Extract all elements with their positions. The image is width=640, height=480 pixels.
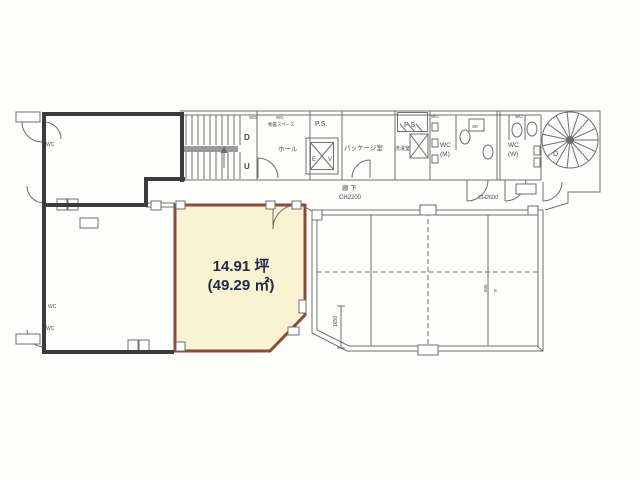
- room-label-wc-upper-left: WC: [46, 142, 55, 148]
- wc-w-label-1: WC: [508, 142, 519, 149]
- spiral-down-label: D: [553, 151, 558, 158]
- paper-background: [0, 0, 640, 480]
- wc-m-label-1: WC: [440, 142, 451, 149]
- package-room-label: パッケージ室: [344, 143, 383, 152]
- ps-label: P.S.: [315, 121, 327, 128]
- elevator-v-label: V: [328, 157, 332, 163]
- wc-m-label-2: (M): [440, 151, 450, 158]
- stairs-down-label: D: [244, 133, 250, 142]
- corridor-label: 廊 下: [342, 183, 357, 192]
- wg-label-1: WG: [249, 115, 257, 120]
- storage-label: 物置スペース: [268, 121, 295, 128]
- ps-small-label: P S: [404, 122, 415, 129]
- dimension-500-label: 500: [483, 284, 488, 292]
- dimension-1650-label: 1650: [333, 316, 339, 327]
- wg-label-2: WG: [276, 115, 284, 120]
- wc-w-label-2: (W): [508, 151, 518, 158]
- hall-label: ホール: [278, 145, 298, 153]
- sk-label: SK: [472, 124, 478, 129]
- ch2600-label: CH2600: [478, 195, 498, 201]
- wg-label-3: WG: [431, 114, 439, 119]
- wg-label-4: WG: [515, 114, 523, 119]
- ch2200-label: CH2200: [339, 195, 362, 201]
- floorplan-svg: WC WC WC D U WG WG 物置スペース ホール P.S. E V パ…: [0, 0, 640, 480]
- elevator-e-label: E: [312, 157, 316, 163]
- staircase-landing-bar: [184, 146, 238, 152]
- laundry-label: 洗濯室: [395, 145, 410, 152]
- floorplan-page: WC WC WC D U WG WG 物置スペース ホール P.S. E V パ…: [0, 0, 640, 480]
- unit-area-sqm: (49.29 ㎡): [208, 276, 275, 294]
- room-label-wc-lower-2: WC: [46, 326, 55, 332]
- stairs-up-label: U: [244, 162, 250, 171]
- grid-e-label: E: [494, 288, 497, 293]
- unit-area-tsubo: 14.91 坪: [213, 258, 270, 275]
- room-label-wc-lower-1: WC: [48, 304, 57, 310]
